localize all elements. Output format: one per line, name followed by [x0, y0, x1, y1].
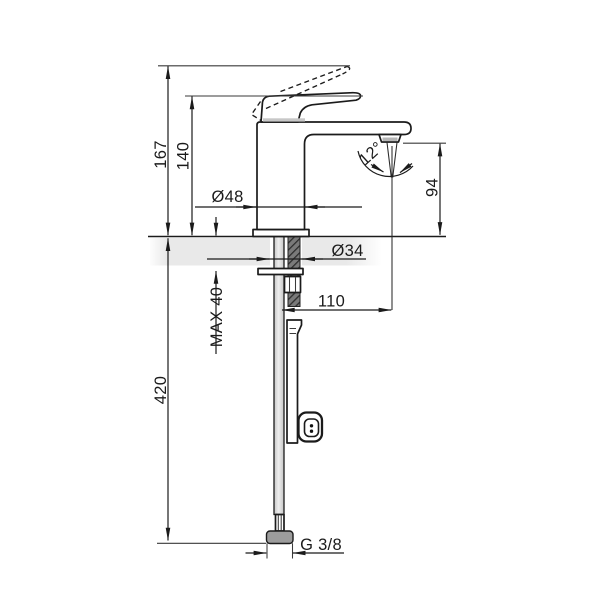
spray-angle-label: 12°	[356, 138, 387, 169]
aerator-mesh	[383, 138, 398, 142]
hose-end-connector	[267, 515, 294, 544]
dim-label-94: 94	[424, 178, 442, 197]
clip-inner	[305, 419, 319, 437]
faucet-base-plate	[253, 230, 309, 237]
mounting-hardware	[258, 237, 322, 544]
dimension-outlet-height-94: 94	[403, 143, 446, 235]
mounting-washer	[258, 269, 303, 275]
dim-label-110: 110	[318, 293, 345, 311]
g38-nut	[267, 531, 294, 544]
raised-pivot-dashed	[252, 102, 262, 121]
spray-angle-arrow-left	[371, 165, 384, 173]
mounting-nut-body	[285, 277, 301, 293]
mounting-nut	[285, 277, 301, 293]
faucet-handle	[261, 93, 361, 122]
clip-dot-bottom	[310, 430, 313, 433]
faucet	[252, 67, 412, 237]
handle-lever	[261, 93, 361, 122]
dim-label-d48: Ø48	[211, 188, 243, 206]
dimension-hose-length-420: 420	[152, 238, 170, 540]
aerator	[379, 135, 401, 143]
supply-hose	[274, 237, 284, 515]
spray-angle: 12°	[356, 138, 413, 176]
water-stream	[387, 143, 397, 311]
dim-label-g38: G 3/8	[300, 536, 342, 554]
dimension-thread-g38: G 3/8	[157, 536, 344, 559]
dim-label-max40: MAX 40	[208, 287, 226, 348]
dim-label-420: 420	[152, 376, 170, 404]
dim-label-140: 140	[175, 142, 193, 170]
dim-label-167: 167	[152, 140, 170, 168]
handle-joint-shadow	[263, 118, 305, 121]
dimension-max-thickness-40: MAX 40	[208, 217, 226, 354]
faucet-dimension-drawing: 12° 167 140 Ø48 Ø34 94 110 MAX 40	[0, 0, 600, 600]
quick-connect-clip	[299, 413, 323, 442]
clip-dot-top	[310, 424, 313, 427]
technical-drawing-canvas: 12° 167 140 Ø48 Ø34 94 110 MAX 40	[0, 0, 600, 600]
connector-shank	[276, 515, 285, 532]
dim-label-d34: Ø34	[331, 242, 363, 260]
